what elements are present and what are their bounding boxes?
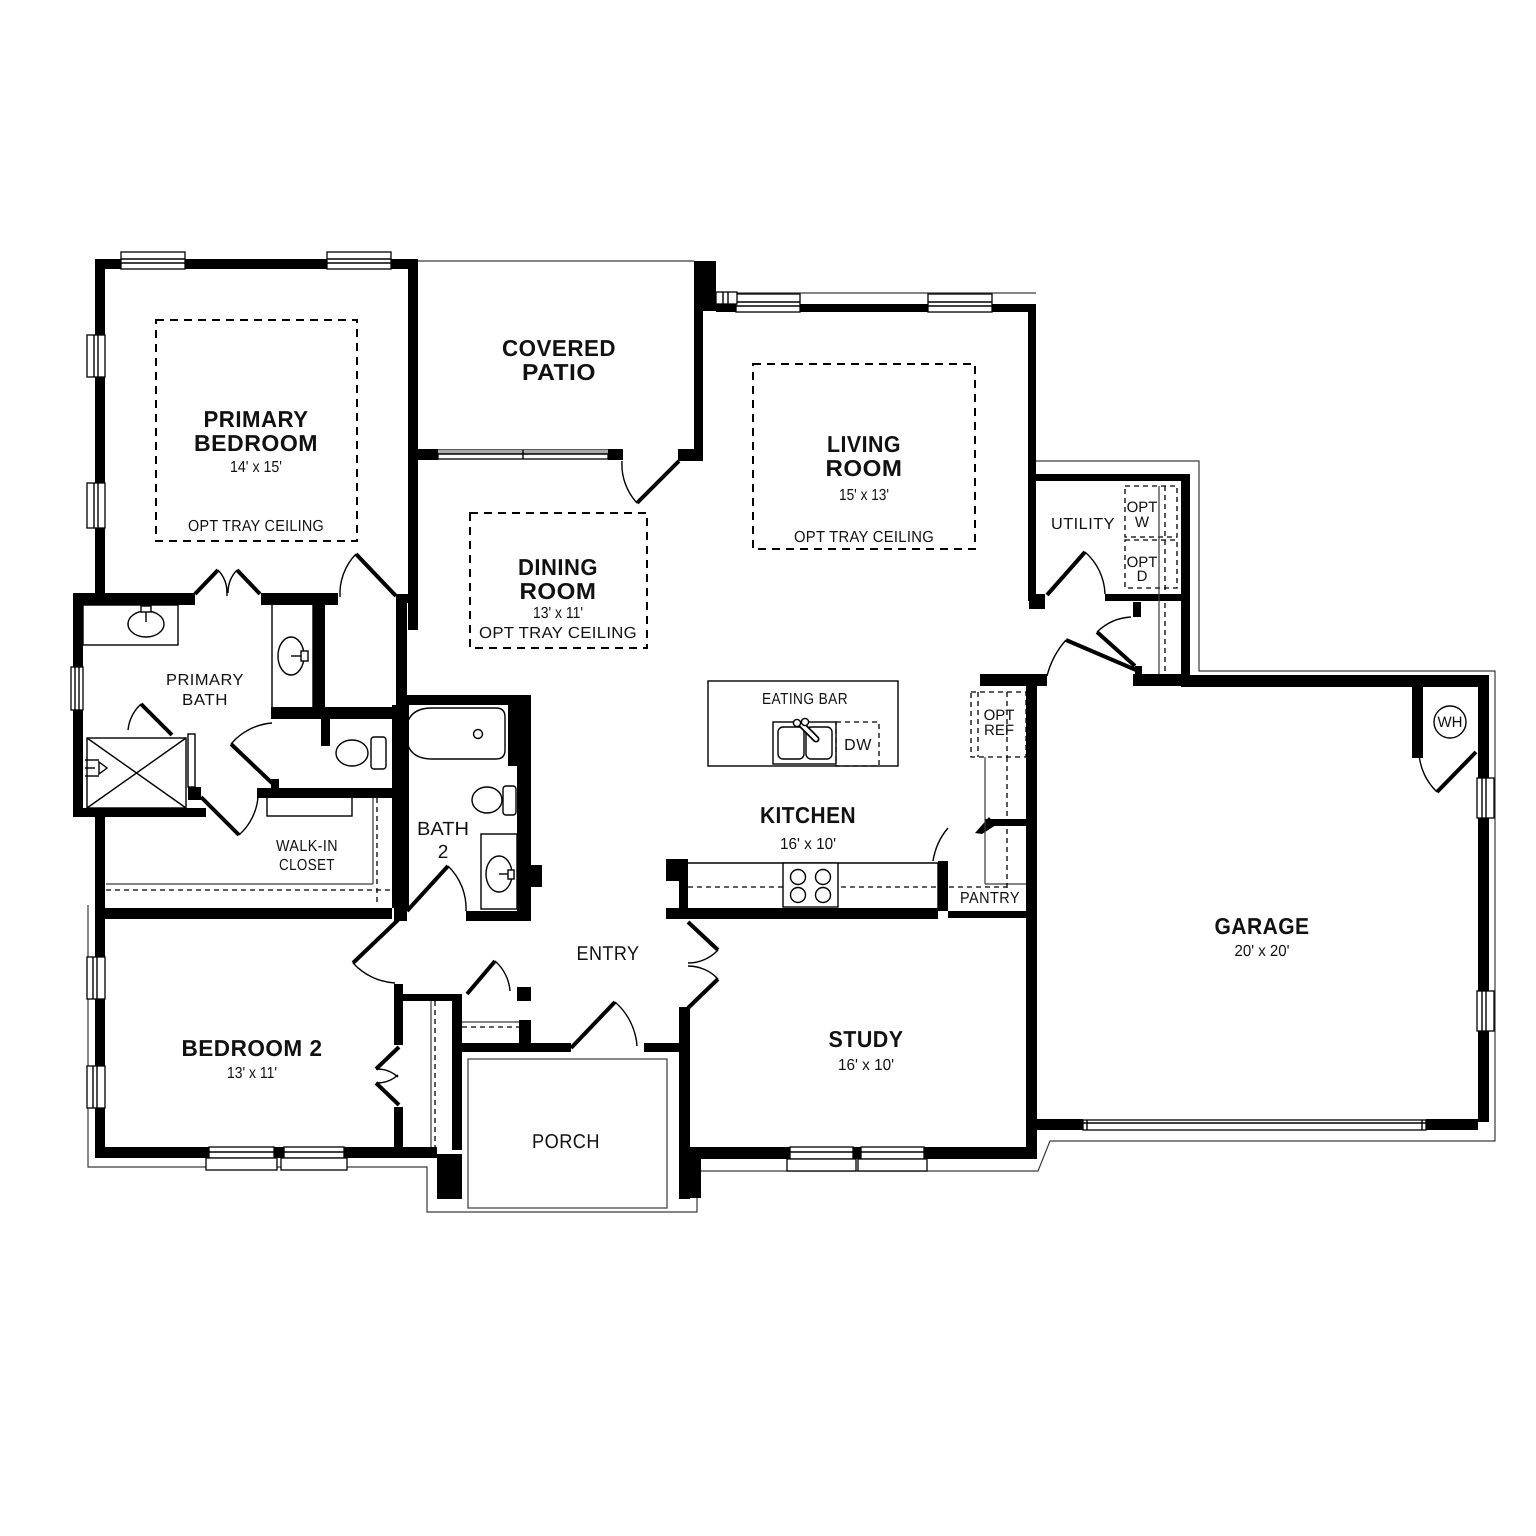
svg-text:WALK-IN: WALK-IN	[276, 838, 338, 855]
svg-text:BEDROOM: BEDROOM	[194, 430, 318, 456]
svg-text:2: 2	[438, 842, 449, 863]
svg-text:W: W	[1135, 514, 1150, 531]
svg-text:14' x 15': 14' x 15'	[230, 459, 282, 476]
svg-text:STUDY: STUDY	[829, 1026, 904, 1052]
svg-text:REF: REF	[984, 722, 1014, 739]
svg-text:UTILITY: UTILITY	[1051, 516, 1115, 533]
svg-text:ROOM: ROOM	[520, 578, 597, 604]
svg-text:EATING BAR: EATING BAR	[762, 691, 848, 708]
svg-text:ENTRY: ENTRY	[577, 943, 640, 965]
svg-text:PRIMARY: PRIMARY	[166, 672, 244, 689]
svg-text:CLOSET: CLOSET	[279, 857, 335, 874]
svg-text:COVERED: COVERED	[502, 335, 616, 361]
svg-text:LIVING: LIVING	[827, 431, 901, 457]
svg-text:BEDROOM 2: BEDROOM 2	[182, 1035, 323, 1061]
svg-text:PANTRY: PANTRY	[960, 890, 1020, 907]
svg-text:BATH: BATH	[182, 692, 228, 709]
svg-text:OPT TRAY CEILING: OPT TRAY CEILING	[794, 529, 934, 546]
svg-text:OPT TRAY CEILING: OPT TRAY CEILING	[479, 625, 637, 642]
svg-text:KITCHEN: KITCHEN	[760, 802, 856, 828]
svg-text:GARAGE: GARAGE	[1215, 913, 1310, 939]
svg-text:13' x 11': 13' x 11'	[227, 1065, 277, 1082]
svg-text:DINING: DINING	[518, 554, 598, 580]
svg-text:20' x 20': 20' x 20'	[1235, 943, 1290, 960]
svg-text:BATH: BATH	[417, 819, 469, 840]
svg-text:PATIO: PATIO	[522, 359, 596, 385]
svg-text:13' x 11': 13' x 11'	[533, 605, 583, 622]
svg-text:16' x 10': 16' x 10'	[780, 836, 836, 853]
svg-text:D: D	[1137, 568, 1148, 585]
svg-text:OPT TRAY CEILING: OPT TRAY CEILING	[188, 518, 324, 535]
svg-text:PORCH: PORCH	[532, 1131, 600, 1153]
svg-text:ROOM: ROOM	[826, 455, 903, 481]
svg-text:DW: DW	[844, 737, 872, 754]
svg-text:WH: WH	[1438, 714, 1463, 731]
svg-text:PRIMARY: PRIMARY	[204, 406, 309, 432]
svg-text:15' x 13': 15' x 13'	[839, 487, 889, 504]
svg-text:16' x 10': 16' x 10'	[838, 1057, 894, 1074]
